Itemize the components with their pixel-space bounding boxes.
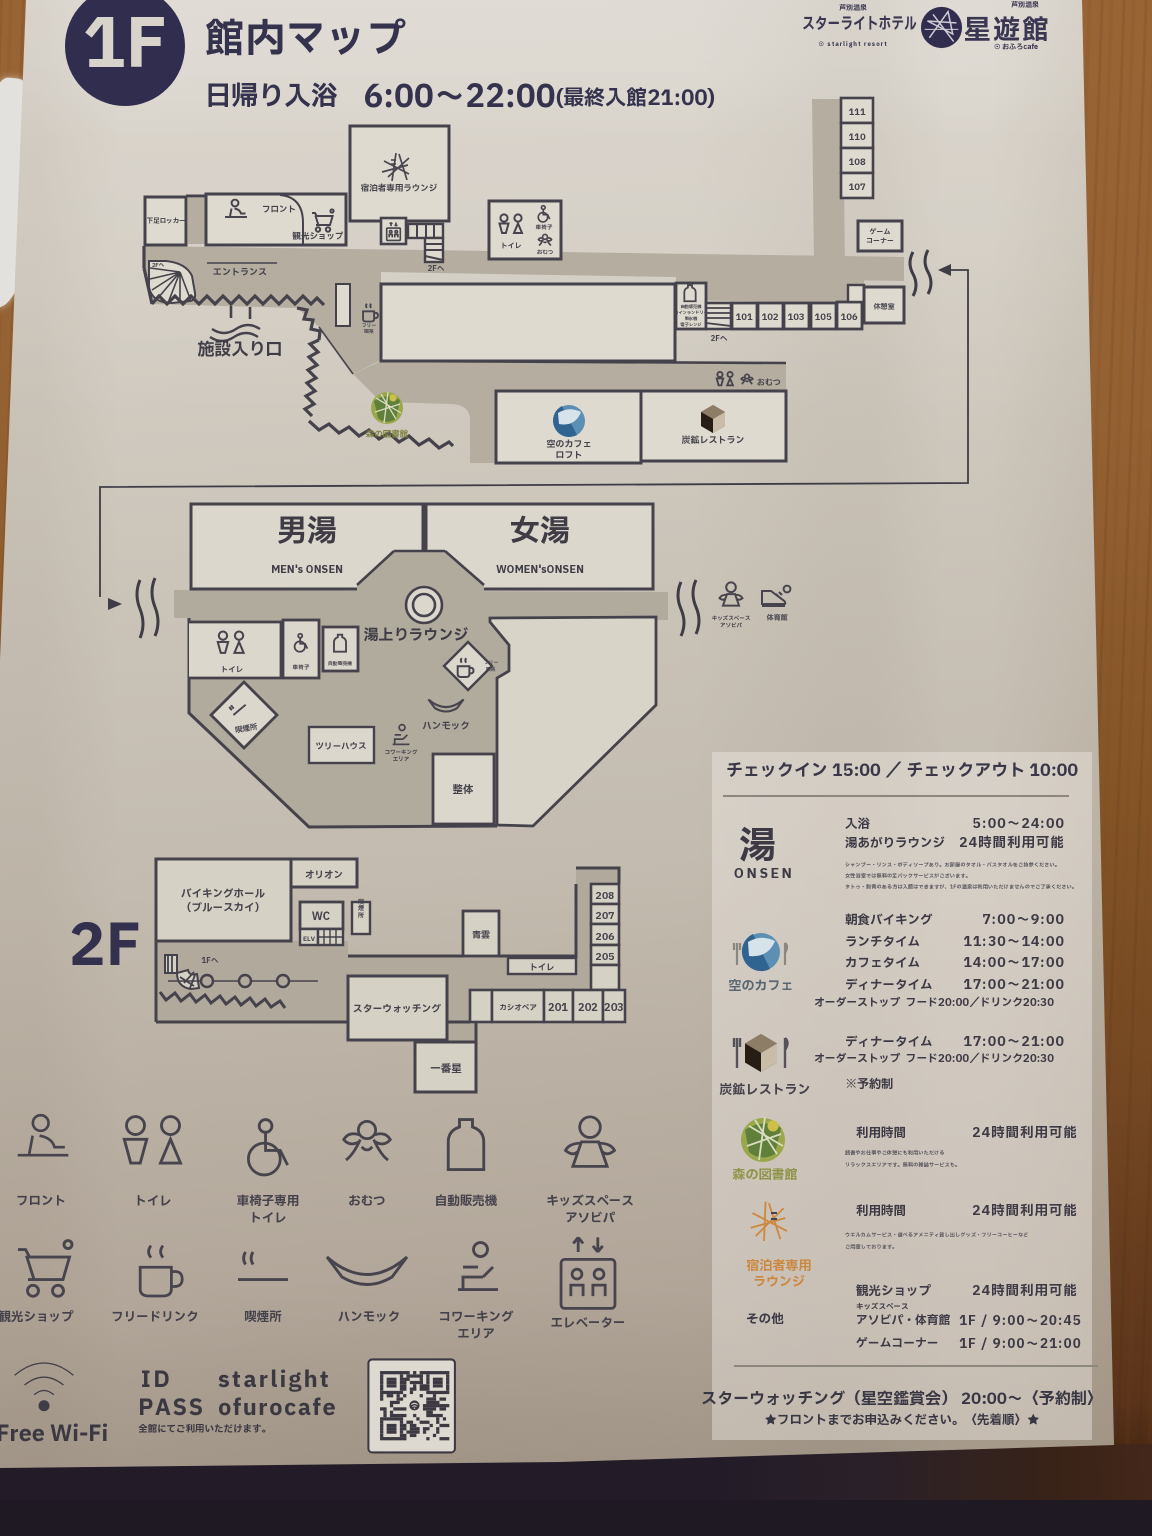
- svg-text:108: 108: [848, 155, 865, 169]
- svg-text:（ブルースカイ）: （ブルースカイ）: [181, 900, 265, 916]
- svg-text:103: 103: [788, 310, 805, 324]
- svg-text:自動販売機: 自動販売機: [681, 304, 703, 310]
- svg-text:2Fへ: 2Fへ: [711, 334, 728, 345]
- svg-text:アソビパ: アソビパ: [565, 1209, 615, 1228]
- svg-text:コーナー: コーナー: [866, 237, 894, 247]
- svg-text:207: 207: [596, 909, 615, 924]
- svg-text:1Fへ: 1Fへ: [201, 956, 219, 967]
- svg-text:おむつ: おむつ: [537, 249, 554, 257]
- svg-text:全館にてご利用いただけます。: 全館にてご利用いただけます。: [138, 1423, 271, 1437]
- svg-text:体育館: 体育館: [767, 613, 788, 624]
- svg-text:トイレ: トイレ: [249, 1209, 287, 1228]
- svg-text:森の図書館: 森の図書館: [366, 428, 409, 441]
- svg-text:106: 106: [840, 310, 858, 324]
- svg-text:トイレ: トイレ: [501, 242, 522, 252]
- svg-text:フロント: フロント: [16, 1192, 66, 1211]
- svg-text:ofurocafe: ofurocafe: [218, 1391, 337, 1425]
- svg-text:車椅子: 車椅子: [293, 664, 310, 672]
- svg-text:Free Wi-Fi: Free Wi-Fi: [0, 1418, 108, 1451]
- svg-text:アソビパ: アソビパ: [720, 622, 743, 630]
- svg-text:喫煙所: 喫煙所: [356, 899, 366, 919]
- svg-text:湯上りラウンジ: 湯上りラウンジ: [363, 624, 468, 647]
- svg-text:WOMEN'sONSEN: WOMEN'sONSEN: [496, 562, 584, 578]
- svg-text:自動販売機: 自動販売機: [435, 1192, 498, 1211]
- svg-text:休憩室: 休憩室: [874, 302, 895, 313]
- svg-text:フリー: フリー: [484, 659, 498, 667]
- svg-text:110: 110: [848, 130, 866, 144]
- svg-text:喫煙所: 喫煙所: [244, 1308, 282, 1327]
- svg-text:201: 201: [548, 1000, 568, 1016]
- svg-text:111: 111: [848, 105, 865, 119]
- svg-text:カシオペア: カシオペア: [499, 1003, 537, 1014]
- svg-text:2F: 2F: [69, 904, 141, 991]
- svg-text:喫茶: 喫茶: [364, 329, 374, 336]
- svg-text:ハンモック: ハンモック: [338, 1308, 401, 1327]
- svg-text:炭鉱レストラン: 炭鉱レストラン: [681, 433, 744, 447]
- svg-text:おむつ: おむつ: [757, 377, 781, 389]
- svg-text:車椅子: 車椅子: [536, 224, 553, 232]
- svg-text:2Fへ: 2Fへ: [152, 262, 165, 270]
- svg-text:205: 205: [596, 950, 615, 965]
- svg-text:ツリーハウス: ツリーハウス: [315, 740, 367, 753]
- svg-text:エレベーター: エレベーター: [550, 1314, 625, 1333]
- svg-text:コインランドリー: コインランドリー: [674, 310, 708, 316]
- svg-text:102: 102: [761, 310, 778, 324]
- svg-text:オリオン: オリオン: [305, 869, 343, 883]
- svg-text:観光ショップ: 観光ショップ: [0, 1308, 74, 1327]
- svg-text:202: 202: [578, 1000, 598, 1016]
- svg-text:フリードリンク: フリードリンク: [111, 1308, 199, 1327]
- svg-text:自動販売機: 自動販売機: [328, 660, 352, 668]
- svg-text:2Fへ: 2Fへ: [428, 264, 445, 275]
- svg-text:女湯: 女湯: [510, 510, 570, 555]
- svg-text:青雲: 青雲: [472, 928, 490, 942]
- svg-text:喫茶: 喫茶: [486, 667, 496, 674]
- svg-text:エリア: エリア: [457, 1325, 495, 1344]
- svg-text:エリア: エリア: [393, 756, 410, 764]
- svg-text:WC: WC: [312, 908, 331, 925]
- svg-text:施設入り口: 施設入り口: [198, 338, 283, 363]
- svg-text:整体: 整体: [453, 782, 474, 798]
- svg-text:スターウォッチング: スターウォッチング: [353, 1003, 441, 1017]
- svg-text:ハンモック: ハンモック: [422, 720, 470, 734]
- svg-text:MEN's ONSEN: MEN's ONSEN: [271, 562, 343, 578]
- svg-text:エントランス: エントランス: [213, 265, 267, 279]
- svg-text:観光ショップ: 観光ショップ: [292, 230, 344, 243]
- svg-text:おむつ: おむつ: [348, 1192, 386, 1211]
- svg-text:203: 203: [604, 1000, 624, 1016]
- svg-text:宿泊者専用ラウンジ: 宿泊者専用ラウンジ: [360, 182, 438, 195]
- svg-text:105: 105: [814, 310, 831, 324]
- svg-text:男湯: 男湯: [277, 510, 337, 555]
- svg-text:トイレ: トイレ: [529, 961, 555, 974]
- svg-text:206: 206: [596, 930, 616, 945]
- svg-text:トイレ: トイレ: [221, 665, 244, 676]
- svg-text:トイレ: トイレ: [134, 1192, 172, 1211]
- svg-text:107: 107: [848, 180, 865, 194]
- svg-text:製氷機: 製氷機: [684, 315, 698, 322]
- svg-text:ELV: ELV: [303, 934, 316, 944]
- svg-text:ロフト: ロフト: [555, 448, 582, 462]
- svg-text:電子レンジ: 電子レンジ: [681, 322, 703, 328]
- svg-text:下足ロッカー: 下足ロッカー: [147, 216, 186, 226]
- svg-text:PASS: PASS: [138, 1391, 205, 1425]
- svg-text:一番星: 一番星: [430, 1061, 462, 1077]
- svg-text:フロント: フロント: [262, 203, 296, 216]
- svg-text:208: 208: [596, 889, 616, 904]
- svg-text:101: 101: [735, 310, 752, 324]
